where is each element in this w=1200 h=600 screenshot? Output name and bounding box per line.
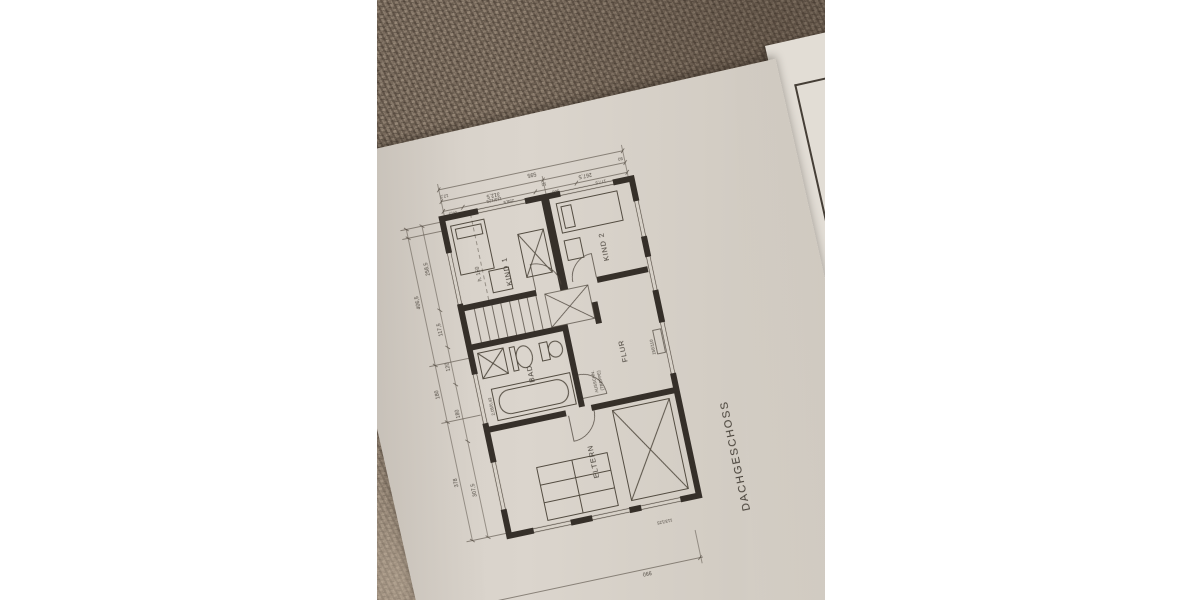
room-label-bad: BAD (524, 364, 537, 383)
dim-tick-b: 50 (617, 156, 623, 162)
window-fraction-left: 113/125 (656, 518, 673, 526)
toilet (539, 339, 564, 361)
dim-right-inner-3: 177,5 (594, 178, 606, 185)
dim-top-outer-2: 406,5 (414, 295, 423, 309)
bed-eltern (537, 453, 619, 521)
dimension-chain-right: 595 312,5 10 267,5 60,5 258,5 100 177,5 … (436, 144, 631, 218)
floor-plan-drawing: KIND 1 KIND 2 BAD FLUR ELTERN AUSSCHN. (… (377, 26, 825, 600)
shower (478, 348, 509, 379)
knee-wall-height-note: h. 150 (475, 266, 484, 282)
table-kind2 (564, 238, 584, 261)
plan-title: DACHGESCHOSS (718, 399, 753, 512)
roof-window-note: 150/110 (648, 338, 656, 355)
room-label-kind1: KIND 1 (499, 256, 514, 286)
room-label-flur: FLUR (616, 339, 630, 363)
dim-top-inner-3: 117,5 (436, 323, 445, 337)
room-label-eltern: ELTERN (585, 444, 601, 479)
bed-kind1 (451, 219, 495, 275)
wardrobe-eltern (612, 399, 688, 501)
wardrobe-kind1 (518, 229, 553, 277)
photo-of-floor-plan: KIND 1 KIND 2 BAD FLUR ELTERN AUSSCHN. (… (377, 0, 825, 600)
dim-right-inner-1: 258,5 (502, 198, 514, 205)
dim-top-inner-4: 258,5 (423, 262, 432, 276)
dim-right-inner-0: 60,5 (448, 210, 458, 217)
dim-total-length: 990 (642, 569, 652, 577)
bed-kind2 (556, 191, 623, 233)
screenshot-stage: KIND 1 KIND 2 BAD FLUR ELTERN AUSSCHN. (… (0, 0, 1200, 600)
doors (530, 252, 628, 443)
dim-total-depth: 595 (527, 170, 537, 178)
dim-top-inner-0: 307,5 (470, 483, 479, 497)
room-label-kind2: KIND 2 (596, 232, 611, 262)
dim-tick-a: 12,5 (439, 193, 449, 200)
